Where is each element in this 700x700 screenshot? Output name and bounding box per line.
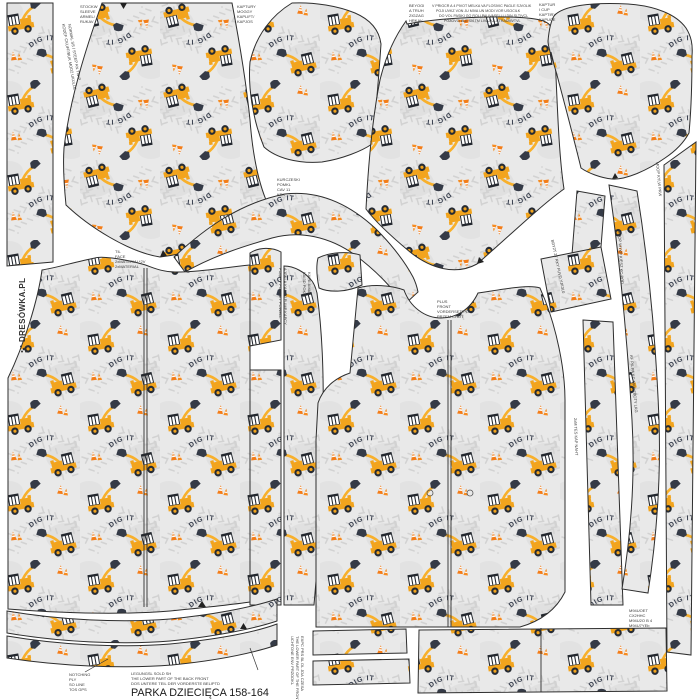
svg-text:KAI3D POKO!: KAI3D POKO! [302,272,307,297]
svg-text:EXPC PRS BL DL JDA CZESA: EXPC PRS BL DL JDA CZESA [300,636,305,691]
svg-text:KRK: KRK [277,192,286,197]
svg-text:POJI UVKZ VON JU MIVA UN MODI: POJI UVKZ VON JU MIVA UN MODI VOR USOCIL… [436,9,521,13]
svg-text:TOS GPS: TOS GPS [69,687,87,692]
svg-text:HRKAV: HRKAV [409,18,423,23]
svg-text:PUMP P POCKET POWELL: PUMP P POCKET POWELL [278,268,283,319]
svg-text:DOS UNTERE TEIL DER VORDERSTE: DOS UNTERE TEIL DER VORDERSTE BELIPTD [131,681,220,686]
svg-text:PRZEM CHOT: PRZEM CHOT [437,314,464,319]
svg-text:KAPE AMAL: KAPE AMAL [307,272,312,295]
svg-text:POZOVCI ALE SN TM LIVAJKA A TR: POZOVCI ALE SN TM LIVAJKA A TRAUMVTVL [444,19,521,23]
svg-text:V PRIGCR A 4 PIVOT MELKA VA FL: V PRIGCR A 4 PIVOT MELKA VA FLOSIVIC PAG… [432,4,532,8]
svg-text:KAPJOS: KAPJOS [237,19,253,24]
svg-text:PARKA DZIECIĘCA 158-164: PARKA DZIECIĘCA 158-164 [131,687,269,699]
svg-text:RUKAV: RUKAV [80,19,94,24]
svg-text:DRESÓWKA.PL: DRESÓWKA.PL [18,278,27,342]
svg-text:M94U7YEb: M94U7YEb [629,623,650,628]
svg-text:THE LOWER PART OF THE FRONT: THE LOWER PART OF THE FRONT [295,636,300,700]
svg-text:DO VOL PASIKI GO ROLI PALIVASE: DO VOL PASIKI GO ROLI PALIVASELI LI DIN … [439,14,528,18]
svg-text:UCHTONE ENV PRZODKL: UCHTONE ENV PRZODKL [290,636,295,686]
svg-text:AJGKLA KAPMJ PUMP KAPCY: AJGKLA KAPMJ PUMP KAPCY [283,268,288,325]
svg-text:2xMATERIAL: 2xMATERIAL [115,264,140,269]
svg-text:KAPUCE: KAPUCE [539,17,556,22]
